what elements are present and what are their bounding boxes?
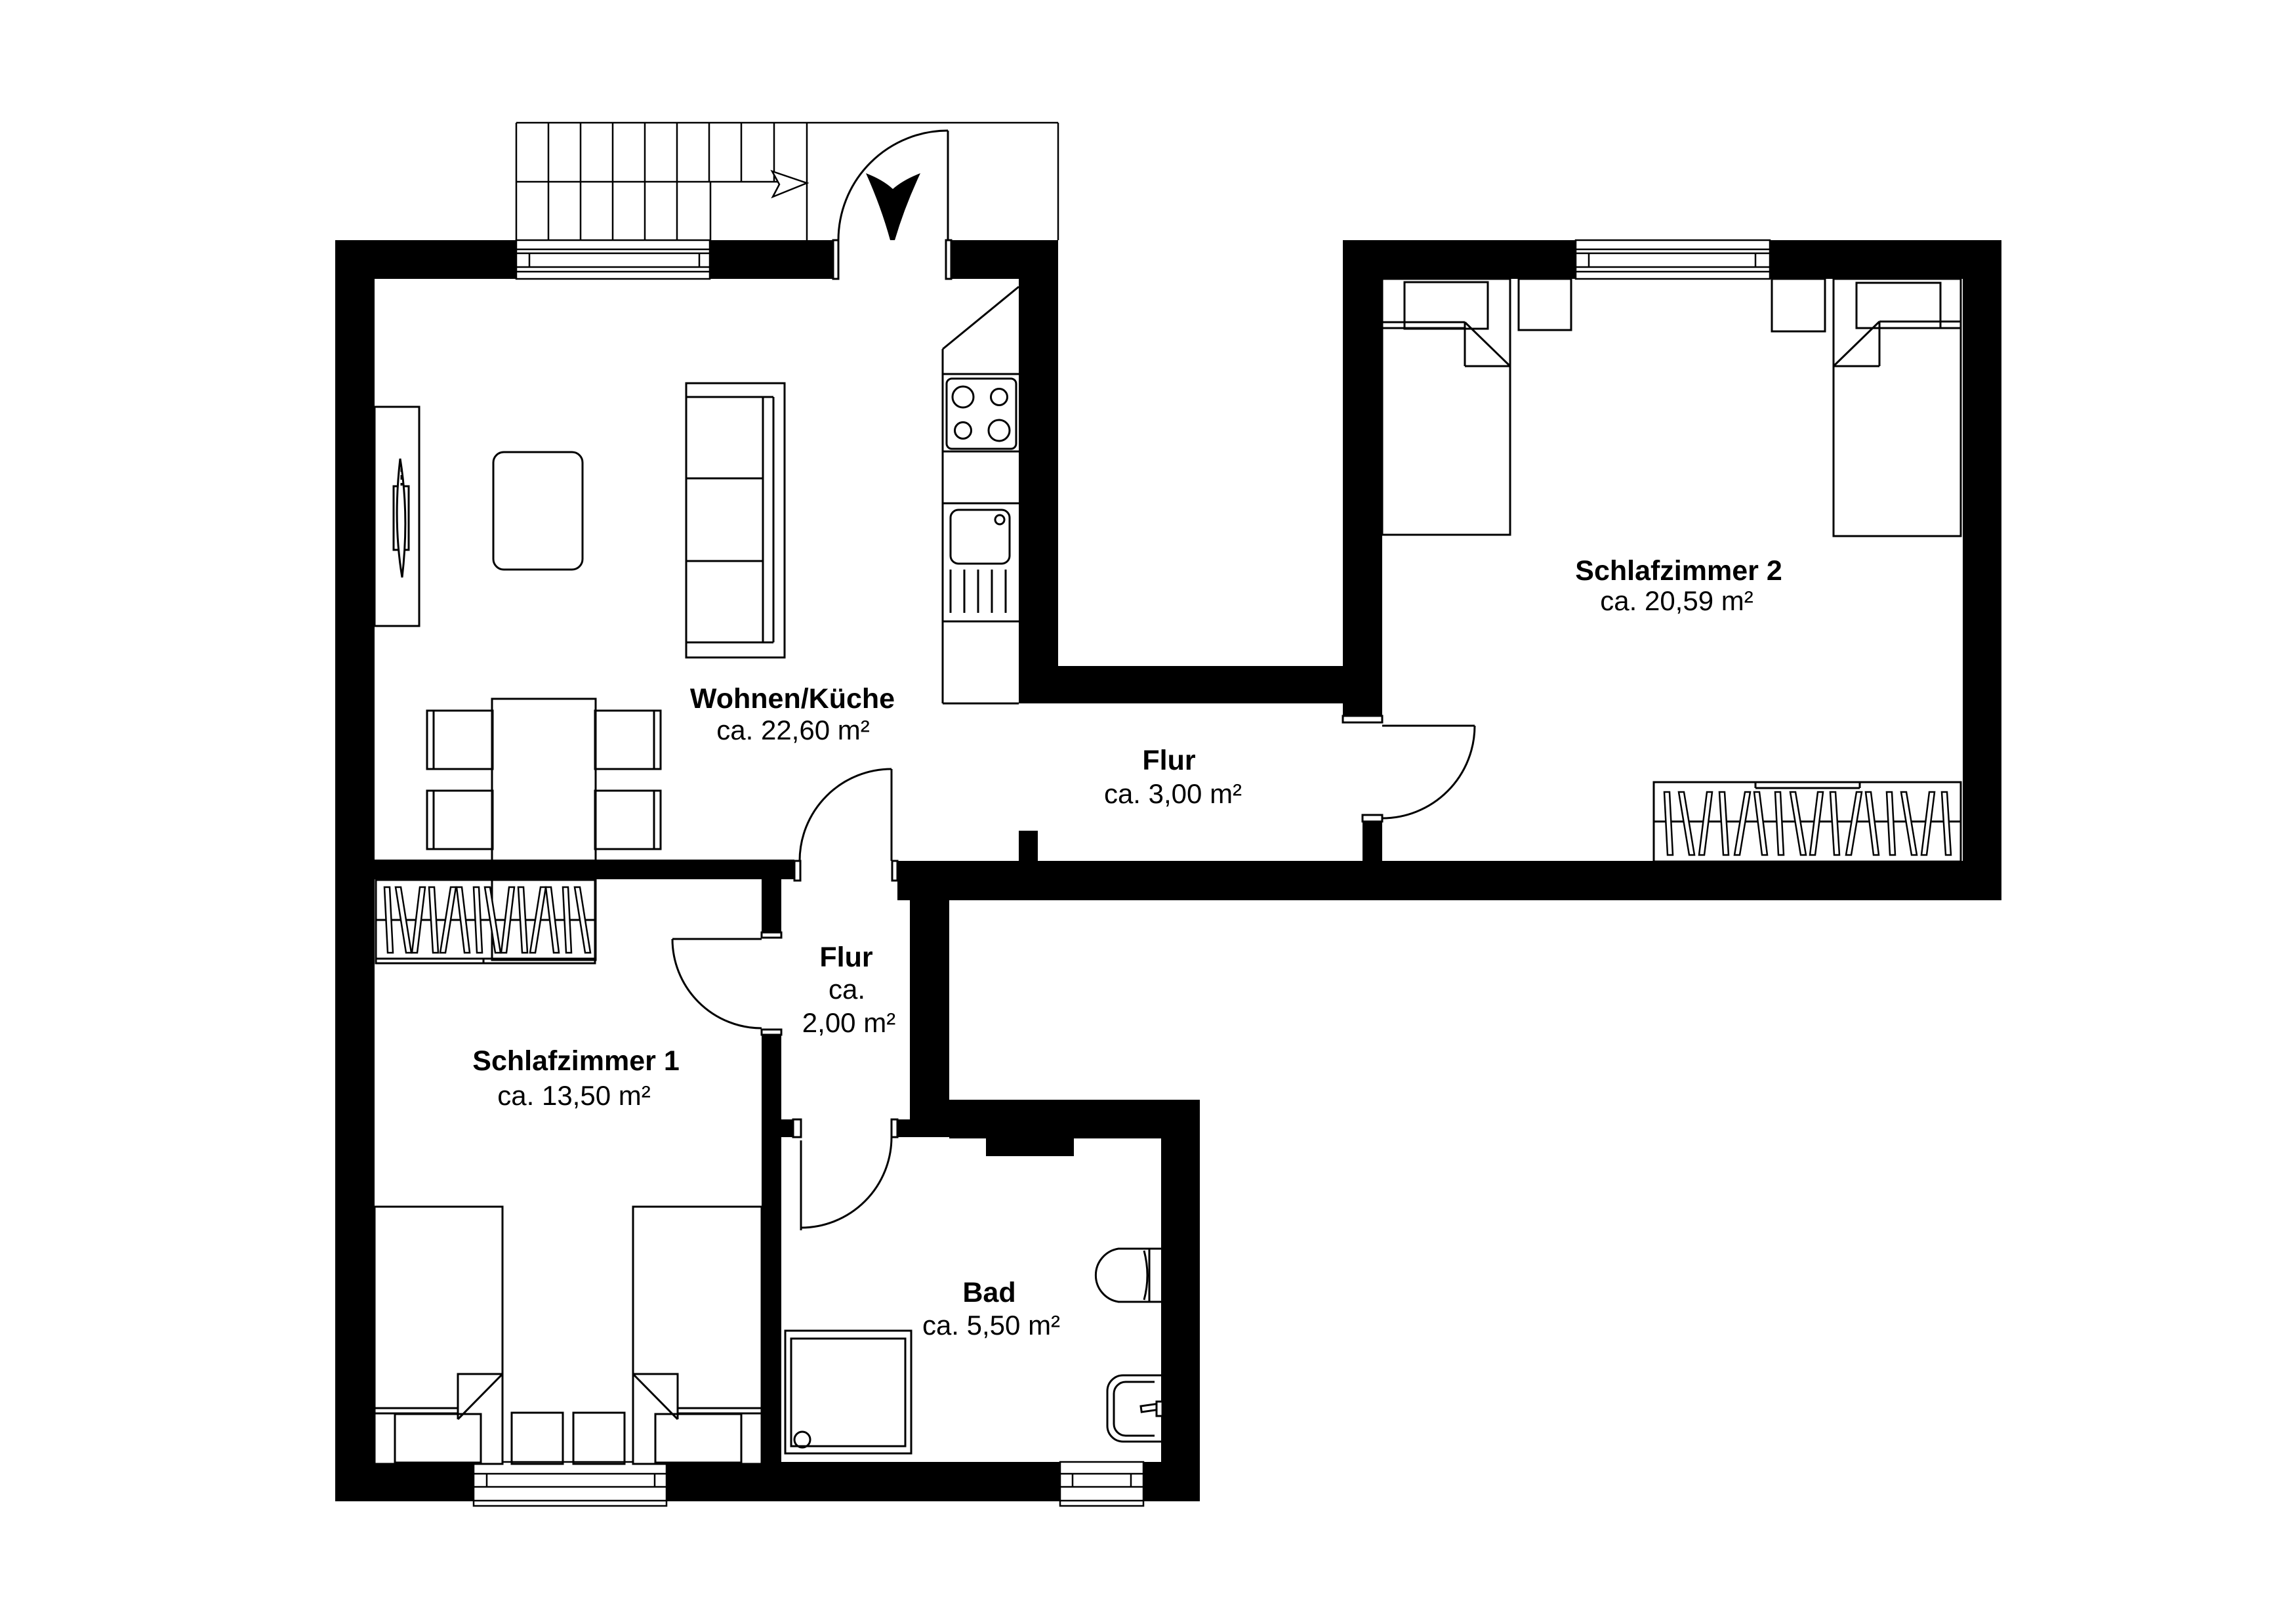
- svg-text:Flur: Flur: [1142, 745, 1195, 776]
- svg-text:ca. 3,00 m²: ca. 3,00 m²: [1104, 778, 1242, 809]
- svg-text:Wohnen/Küche: Wohnen/Küche: [690, 683, 895, 715]
- svg-text:ca. 5,50 m²: ca. 5,50 m²: [922, 1310, 1060, 1341]
- svg-text:ca.: ca.: [829, 974, 865, 1005]
- svg-text:Schlafzimmer 1: Schlafzimmer 1: [472, 1045, 679, 1077]
- svg-text:ca. 22,60 m²: ca. 22,60 m²: [716, 715, 869, 745]
- svg-text:Flur: Flur: [819, 942, 872, 973]
- svg-text:ca. 20,59 m²: ca. 20,59 m²: [1600, 585, 1753, 616]
- svg-text:ca. 13,50 m²: ca. 13,50 m²: [497, 1080, 650, 1111]
- svg-text:Bad: Bad: [962, 1277, 1015, 1308]
- svg-text:2,00 m²: 2,00 m²: [802, 1007, 895, 1038]
- svg-text:Schlafzimmer 2: Schlafzimmer 2: [1575, 555, 1782, 587]
